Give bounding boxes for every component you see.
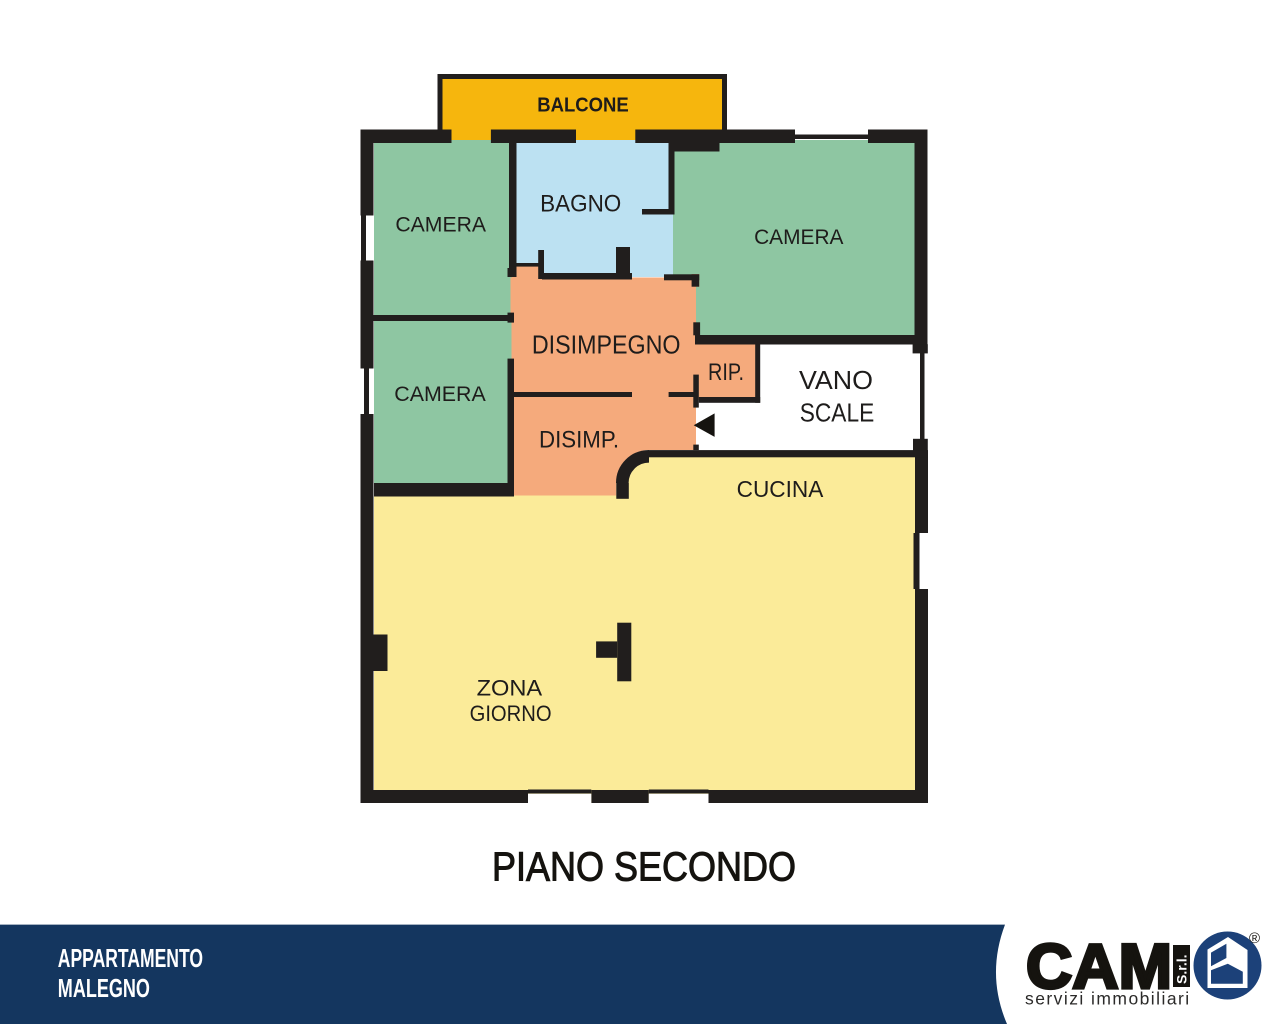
svg-text:CAMERA: CAMERA	[395, 213, 486, 236]
svg-text:PIANO SECONDO: PIANO SECONDO	[492, 843, 796, 889]
svg-text:GIORNO: GIORNO	[470, 701, 552, 726]
svg-text:CAMERA: CAMERA	[754, 226, 843, 249]
svg-text:APPARTAMENTO: APPARTAMENTO	[58, 944, 203, 973]
svg-text:DISIMPEGNO: DISIMPEGNO	[532, 330, 681, 360]
svg-text:DISIMP.: DISIMP.	[539, 427, 619, 454]
svg-text:MALEGNO: MALEGNO	[58, 974, 150, 1003]
svg-text:ZONA: ZONA	[477, 675, 543, 700]
svg-text:BALCONE: BALCONE	[537, 95, 629, 117]
svg-text:®: ®	[1249, 930, 1260, 947]
svg-text:S.r.l.: S.r.l.	[1174, 954, 1190, 984]
svg-text:BAGNO: BAGNO	[540, 190, 621, 217]
svg-text:CUCINA: CUCINA	[737, 476, 824, 502]
svg-text:RIP.: RIP.	[708, 359, 744, 386]
svg-text:CAMERA: CAMERA	[394, 383, 486, 406]
svg-text:SCALE: SCALE	[800, 397, 875, 427]
svg-text:VANO: VANO	[799, 365, 873, 395]
svg-text:servizi immobiliari: servizi immobiliari	[1025, 989, 1191, 1009]
